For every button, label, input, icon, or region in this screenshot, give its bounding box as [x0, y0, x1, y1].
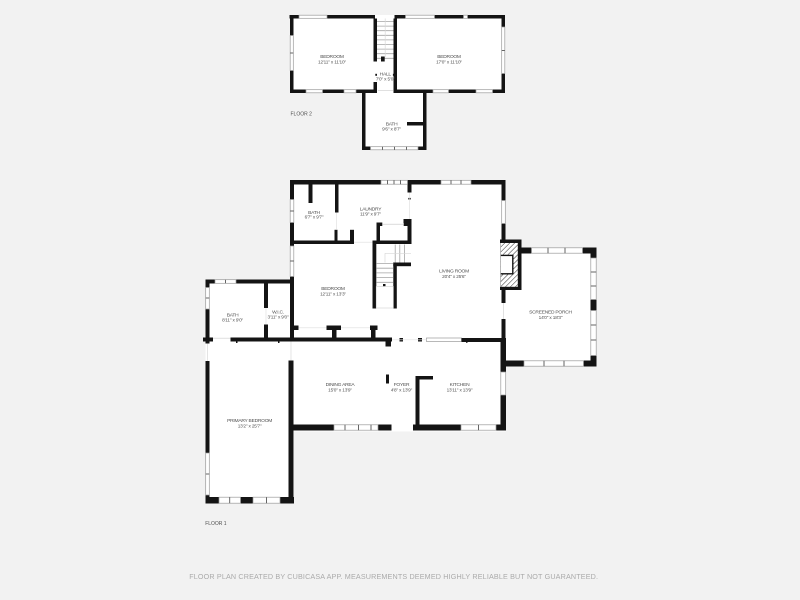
svg-text:15'0" x 13'9": 15'0" x 13'9"	[328, 387, 352, 392]
svg-text:4'8" x 13'9": 4'8" x 13'9"	[391, 387, 413, 392]
svg-text:FLOOR 1: FLOOR 1	[205, 521, 227, 527]
svg-text:3'11" x 9'0": 3'11" x 9'0"	[268, 315, 289, 320]
svg-text:9'6" x 8'7": 9'6" x 8'7"	[382, 126, 401, 131]
svg-text:17'0" x 11'10": 17'0" x 11'10"	[436, 59, 462, 64]
svg-text:8'11" x 9'0": 8'11" x 9'0"	[222, 317, 243, 322]
svg-text:FLOOR 2: FLOOR 2	[291, 111, 313, 117]
svg-text:FLOOR PLAN CREATED BY CUBICASA: FLOOR PLAN CREATED BY CUBICASA APP. MEAS…	[189, 572, 598, 581]
svg-text:12'11" x 13'3": 12'11" x 13'3"	[320, 291, 346, 296]
svg-text:13'2" x 25'7": 13'2" x 25'7"	[238, 424, 262, 429]
svg-text:6'7" x 9'7": 6'7" x 9'7"	[305, 215, 324, 220]
svg-text:7'0" x 5'0": 7'0" x 5'0"	[376, 76, 395, 81]
svg-text:11'9" x 9'7": 11'9" x 9'7"	[360, 212, 381, 217]
svg-text:13'11" x 13'9": 13'11" x 13'9"	[447, 387, 473, 392]
svg-text:14'0" x 18'3": 14'0" x 18'3"	[539, 315, 563, 320]
svg-text:20'4" x 25'6": 20'4" x 25'6"	[442, 274, 466, 279]
svg-text:12'11" x 11'10": 12'11" x 11'10"	[318, 59, 346, 64]
